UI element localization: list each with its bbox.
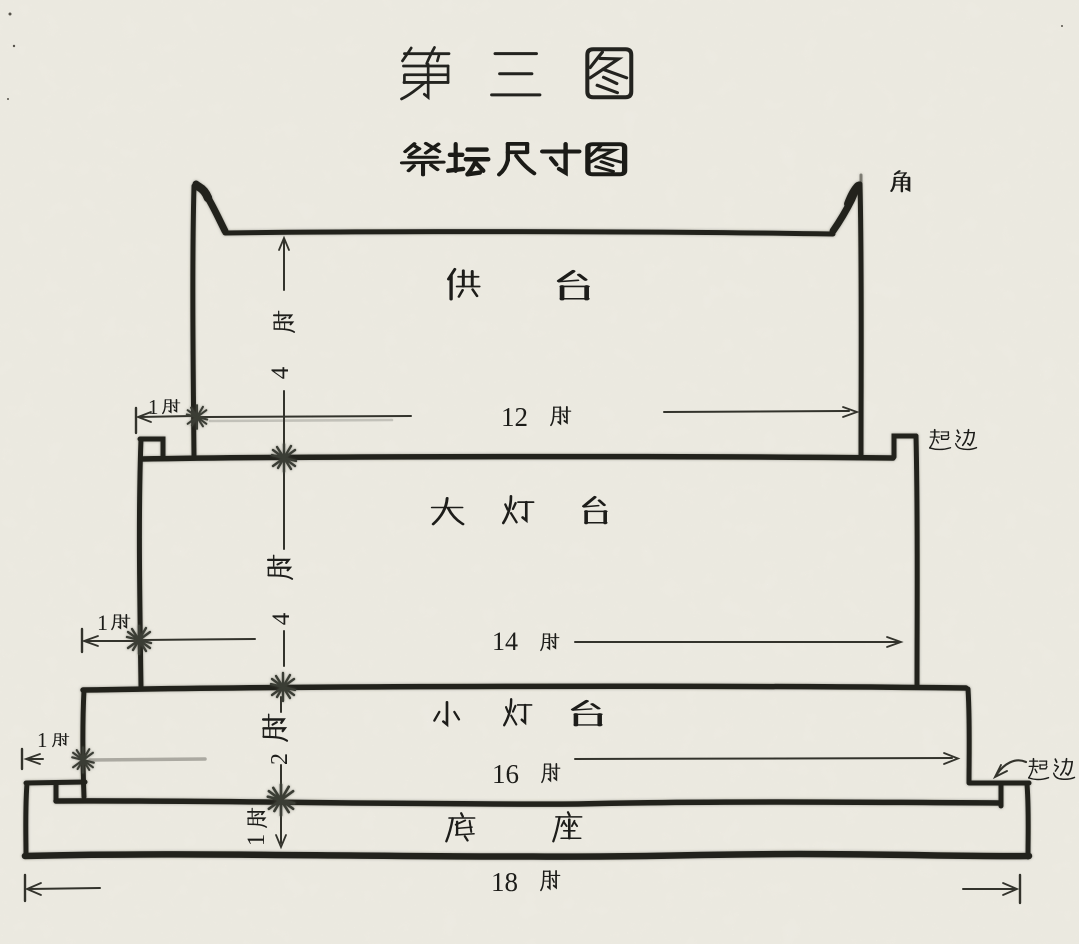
svg-text:2: 2: [267, 753, 293, 765]
svg-text:4: 4: [267, 366, 294, 379]
svg-text:4: 4: [268, 612, 295, 625]
svg-text:12: 12: [501, 402, 528, 432]
svg-text:1: 1: [97, 610, 108, 635]
svg-text:1: 1: [243, 834, 270, 847]
svg-text:1: 1: [37, 728, 48, 752]
svg-text:16: 16: [492, 759, 519, 789]
svg-text:1: 1: [148, 395, 159, 419]
svg-text:14: 14: [492, 627, 518, 656]
svg-text:18: 18: [491, 867, 518, 897]
